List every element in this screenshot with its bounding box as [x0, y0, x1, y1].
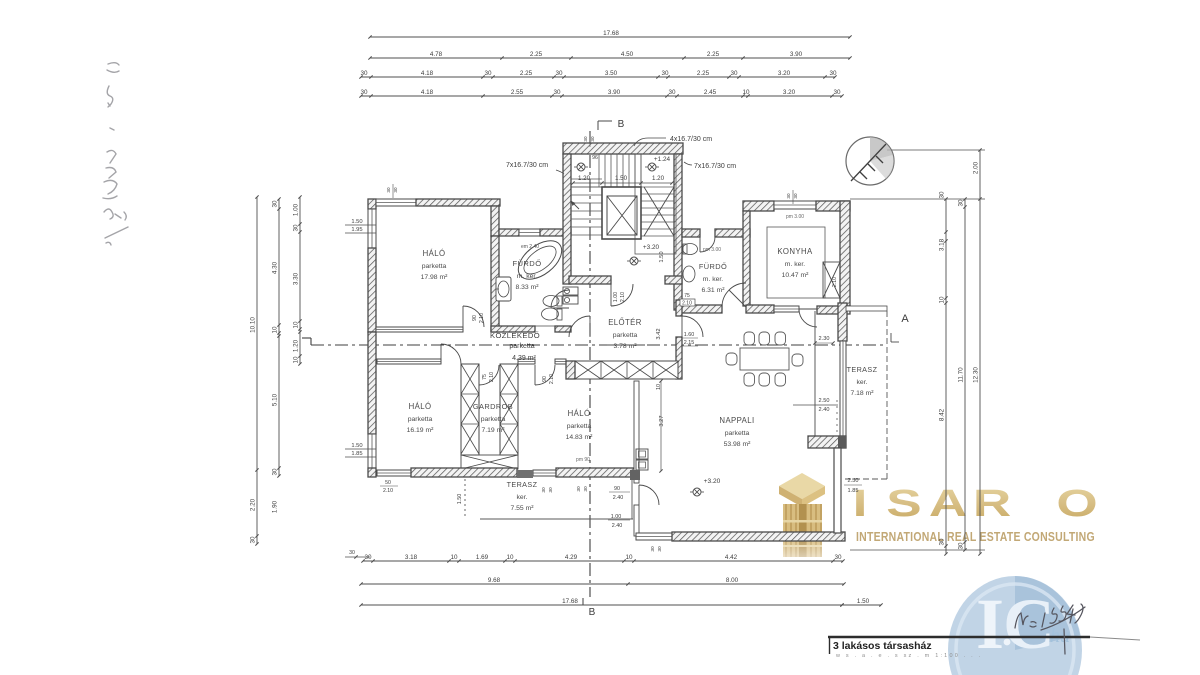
svg-text:30: 30 [650, 546, 656, 552]
svg-text:30: 30 [583, 136, 588, 142]
svg-text:1.85: 1.85 [848, 488, 859, 494]
svg-text:2.40: 2.40 [613, 495, 624, 501]
svg-text:30: 30 [730, 70, 738, 77]
svg-text:30: 30 [958, 542, 965, 550]
svg-text:1.50: 1.50 [457, 494, 463, 505]
svg-text:30: 30 [590, 136, 595, 142]
svg-text:1.50: 1.50 [351, 443, 362, 449]
svg-text:2.25: 2.25 [530, 51, 543, 58]
svg-text:11.70: 11.70 [958, 367, 965, 383]
svg-text:B: B [589, 607, 596, 618]
svg-text:2.25: 2.25 [697, 70, 710, 77]
svg-text:GARDROB: GARDROB [473, 402, 513, 411]
svg-text:1.00: 1.00 [613, 292, 619, 302]
svg-text:2.10: 2.10 [479, 313, 485, 323]
svg-text:30: 30 [555, 70, 563, 77]
svg-text:30: 30 [553, 89, 561, 96]
svg-text:30: 30 [829, 70, 837, 77]
svg-text:4.30: 4.30 [272, 261, 279, 274]
svg-text:7.55 m²: 7.55 m² [510, 505, 534, 512]
svg-text:8.33 m²: 8.33 m² [515, 284, 539, 291]
svg-text:3.90: 3.90 [608, 89, 621, 96]
svg-text:HÁLÓ: HÁLÓ [409, 402, 432, 411]
svg-text:30: 30 [393, 187, 398, 193]
svg-text:+3.20: +3.20 [643, 244, 660, 251]
svg-text:B: B [618, 119, 625, 130]
svg-text:30: 30 [360, 89, 368, 96]
svg-text:2.25: 2.25 [520, 70, 533, 77]
svg-text:50: 50 [385, 480, 391, 486]
svg-text:2.10: 2.10 [549, 374, 555, 384]
svg-text:90: 90 [614, 486, 620, 492]
svg-text:3.50: 3.50 [605, 70, 618, 77]
svg-text:30: 30 [786, 193, 791, 199]
svg-text:FÜRDŐ: FÜRDŐ [513, 259, 542, 268]
svg-text:75: 75 [684, 293, 690, 299]
svg-text:30: 30 [360, 70, 368, 77]
svg-text:parketta: parketta [422, 263, 447, 270]
svg-text:1.50: 1.50 [615, 175, 628, 182]
svg-text:1.20: 1.20 [578, 175, 591, 182]
svg-text:A: A [929, 482, 967, 525]
svg-text:parketta: parketta [613, 332, 638, 339]
svg-text:7.18 m²: 7.18 m² [850, 390, 874, 397]
svg-text:90: 90 [542, 376, 548, 382]
svg-text:2.50: 2.50 [848, 478, 859, 484]
svg-text:30: 30 [349, 550, 355, 556]
svg-text:C: C [1003, 584, 1055, 664]
svg-text:em 2.40: em 2.40 [521, 244, 539, 250]
svg-text:ELŐTÉR: ELŐTÉR [608, 318, 642, 327]
svg-text:2.45: 2.45 [704, 89, 717, 96]
svg-text:4x16.7/30 cm: 4x16.7/30 cm [670, 136, 712, 143]
svg-text:pm 3.00: pm 3.00 [786, 214, 804, 220]
svg-text:5.10: 5.10 [272, 393, 279, 406]
svg-text:3 lakásos társasház: 3 lakásos társasház [833, 640, 932, 652]
svg-text:2.10: 2.10 [383, 488, 393, 494]
svg-text:30: 30 [583, 486, 589, 492]
svg-text:17.98 m²: 17.98 m² [421, 274, 449, 281]
svg-text:INTERNATIONAL REAL ESTATE CONS: INTERNATIONAL REAL ESTATE CONSULTING [856, 530, 1095, 544]
svg-text:TERASZ: TERASZ [507, 480, 538, 489]
svg-text:parketta: parketta [509, 343, 534, 350]
svg-text:30: 30 [661, 70, 669, 77]
svg-text:1.50: 1.50 [857, 598, 870, 605]
svg-text:10: 10 [625, 554, 633, 561]
svg-text:30: 30 [576, 486, 582, 492]
svg-text:30: 30 [250, 536, 257, 544]
svg-text:30: 30 [272, 468, 279, 476]
svg-text:1.60: 1.60 [684, 332, 695, 338]
svg-text:30: 30 [939, 191, 946, 199]
svg-text:4.39 m²: 4.39 m² [512, 355, 536, 362]
svg-text:pm 3.00: pm 3.00 [703, 247, 721, 253]
svg-text:1.90: 1.90 [272, 500, 279, 513]
svg-text:7x16.7/30 cm: 7x16.7/30 cm [694, 163, 736, 170]
svg-text:parketta: parketta [408, 416, 433, 423]
svg-text:+1.24: +1.24 [654, 156, 671, 163]
svg-text:14.83 m²: 14.83 m² [566, 434, 594, 441]
svg-text:O: O [1056, 482, 1097, 525]
svg-text:12.30: 12.30 [973, 367, 980, 383]
svg-text:3.27: 3.27 [659, 415, 665, 426]
svg-text:7.19 m²: 7.19 m² [481, 427, 505, 434]
svg-text:1.20: 1.20 [293, 339, 300, 352]
svg-text:6.31 m²: 6.31 m² [701, 287, 725, 294]
svg-text:S: S [886, 482, 921, 525]
svg-text:17.68: 17.68 [603, 30, 619, 37]
svg-text:2.40: 2.40 [819, 407, 830, 413]
svg-text:3.20: 3.20 [778, 70, 791, 77]
svg-text:10: 10 [272, 326, 279, 334]
svg-text:3.18: 3.18 [405, 554, 418, 561]
svg-text:3.18: 3.18 [939, 238, 946, 251]
svg-text:30: 30 [958, 199, 965, 207]
svg-text:parketta: parketta [481, 416, 506, 423]
svg-text:10: 10 [939, 296, 946, 304]
svg-text:10: 10 [293, 321, 300, 329]
svg-text:4.78: 4.78 [430, 51, 443, 58]
svg-text:HÁLÓ: HÁLÓ [423, 249, 446, 258]
svg-text:+3.20: +3.20 [704, 478, 721, 485]
svg-text:8.42: 8.42 [939, 408, 946, 421]
svg-text:2.10: 2.10 [682, 301, 692, 307]
svg-text:7x16.7/30 cm: 7x16.7/30 cm [506, 162, 548, 169]
svg-text:parketta: parketta [567, 423, 592, 430]
svg-text:8.00: 8.00 [726, 577, 739, 584]
svg-text:30: 30 [668, 89, 676, 96]
svg-text:m. ker.: m. ker. [517, 273, 538, 280]
svg-text:A: A [901, 313, 909, 325]
svg-text:2.30: 2.30 [819, 336, 830, 342]
svg-text:KONYHA: KONYHA [777, 247, 813, 256]
svg-text:3.90: 3.90 [790, 51, 803, 58]
svg-text:1.00: 1.00 [293, 203, 300, 216]
svg-text:10: 10 [506, 554, 514, 561]
svg-text:1.00: 1.00 [611, 514, 622, 520]
svg-text:4.18: 4.18 [421, 89, 434, 96]
svg-text:2.20: 2.20 [250, 498, 257, 511]
svg-text:10: 10 [450, 554, 458, 561]
svg-text:2.55: 2.55 [511, 89, 524, 96]
svg-text:3.20: 3.20 [783, 89, 796, 96]
svg-text:30: 30 [834, 554, 842, 561]
svg-text:2.10: 2.10 [832, 277, 838, 287]
svg-text:TERASZ: TERASZ [847, 365, 878, 374]
svg-text:2.15: 2.15 [684, 340, 695, 346]
svg-text:2.40: 2.40 [612, 523, 623, 529]
svg-text:R: R [973, 482, 1011, 525]
svg-text:30: 30 [793, 193, 798, 199]
svg-text:9.68: 9.68 [488, 577, 501, 584]
svg-text:10.10: 10.10 [250, 317, 257, 333]
svg-text:10.47 m²: 10.47 m² [782, 272, 810, 279]
svg-text:w s . a . e . s sz: w s . a . e . s sz . m 1:100 . . . [835, 653, 982, 659]
svg-text:17.68: 17.68 [562, 598, 578, 605]
svg-text:10: 10 [293, 356, 300, 364]
svg-text:4.42: 4.42 [725, 554, 738, 561]
svg-text:2.50: 2.50 [819, 398, 830, 404]
svg-text:30: 30 [272, 200, 279, 208]
svg-text:3.42: 3.42 [656, 328, 662, 339]
svg-text:1.95: 1.95 [351, 227, 362, 233]
svg-text:30: 30 [548, 487, 554, 493]
svg-text:2.10: 2.10 [620, 292, 626, 302]
svg-text:pm 90: pm 90 [576, 457, 590, 463]
svg-text:30: 30 [657, 546, 663, 552]
svg-text:10: 10 [742, 89, 750, 96]
svg-text:53.98 m²: 53.98 m² [724, 441, 752, 448]
svg-text:16.19 m²: 16.19 m² [407, 427, 435, 434]
svg-text:30: 30 [541, 487, 547, 493]
svg-text:1.85: 1.85 [351, 451, 362, 457]
svg-text:2.25: 2.25 [707, 51, 720, 58]
svg-text:30: 30 [833, 89, 841, 96]
svg-text:4.18: 4.18 [421, 70, 434, 77]
svg-text:2.00: 2.00 [973, 161, 980, 174]
svg-text:4.50: 4.50 [621, 51, 634, 58]
svg-text:3.30: 3.30 [293, 272, 300, 285]
svg-text:30: 30 [293, 224, 300, 232]
svg-text:30: 30 [386, 187, 391, 193]
svg-text:NAPPALI: NAPPALI [719, 416, 754, 425]
svg-text:1.50: 1.50 [659, 251, 665, 262]
svg-text:75: 75 [482, 374, 488, 380]
svg-text:KÖZLEKEDŐ: KÖZLEKEDŐ [490, 331, 540, 340]
svg-text:m. ker.: m. ker. [703, 276, 724, 283]
svg-text:4.29: 4.29 [565, 554, 578, 561]
svg-text:m. ker.: m. ker. [785, 261, 806, 268]
svg-text:3.78 m²: 3.78 m² [613, 343, 637, 350]
svg-text:I: I [976, 584, 1004, 664]
svg-text:2.10: 2.10 [489, 372, 495, 382]
svg-text:96: 96 [592, 155, 598, 161]
svg-text:90: 90 [472, 315, 478, 321]
svg-text:ker.: ker. [517, 494, 528, 501]
svg-text:30: 30 [939, 538, 946, 546]
svg-text:HÁLÓ: HÁLÓ [568, 409, 591, 418]
svg-text:1.69: 1.69 [476, 554, 489, 561]
svg-text:30: 30 [484, 70, 492, 77]
svg-text:1.20: 1.20 [652, 175, 665, 182]
svg-text:1.50: 1.50 [351, 219, 362, 225]
svg-text:ker.: ker. [857, 379, 868, 386]
svg-text:FÜRDŐ: FÜRDŐ [699, 262, 727, 271]
svg-text:parketta: parketta [725, 430, 750, 437]
